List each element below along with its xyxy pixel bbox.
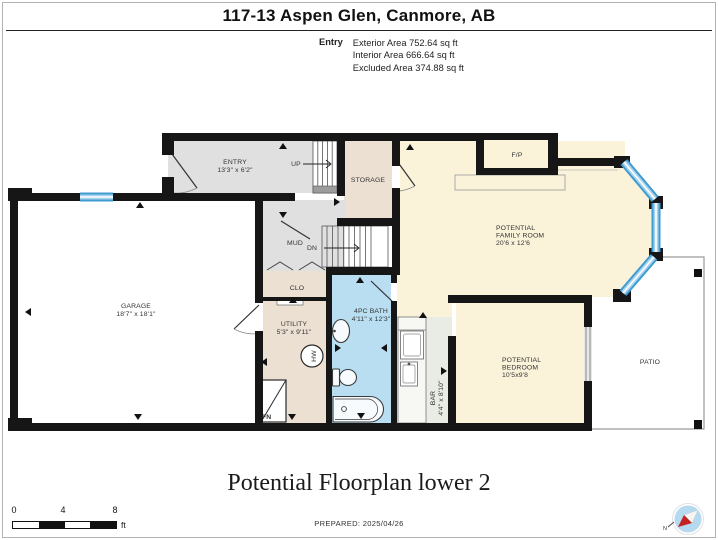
garage-label: GARAGE bbox=[121, 303, 151, 310]
bar-sink-faucet bbox=[408, 363, 411, 366]
garage-door bbox=[234, 305, 259, 329]
bath-label: 4PC BATH bbox=[354, 308, 388, 315]
toilet-tank bbox=[333, 369, 340, 386]
entry-label: ENTRY bbox=[223, 159, 247, 166]
scale-tick-8: 8 bbox=[112, 505, 117, 515]
utility-label: UTILITY bbox=[281, 321, 308, 328]
bedroom-dims: 10'5x9'8 bbox=[502, 372, 528, 379]
floorplan-page: 117-13 Aspen Glen, Canmore, AB Entry Ext… bbox=[0, 0, 718, 540]
bathtub bbox=[333, 397, 384, 423]
bath-dims: 4'11" x 12'3" bbox=[352, 316, 391, 323]
family-room-dims: 20'6 x 12'6 bbox=[496, 240, 530, 247]
stairs-down-label: DN bbox=[307, 245, 317, 252]
utility-dims: 5'3" x 9'11" bbox=[277, 329, 312, 336]
patio-post-bottom bbox=[694, 420, 702, 429]
floorplan-drawing: FN HW bbox=[0, 0, 718, 540]
scale-tick-4: 4 bbox=[60, 505, 65, 515]
bath-sink-faucet bbox=[333, 330, 336, 333]
mud-label: MUD bbox=[287, 240, 303, 247]
scale-tick-0: 0 bbox=[11, 505, 16, 515]
bedroom-label-1: POTENTIAL bbox=[502, 357, 541, 364]
toilet-bowl bbox=[340, 370, 357, 386]
bar-counter bbox=[398, 317, 426, 423]
scale-bar: 0 4 8 ft bbox=[12, 505, 152, 537]
water-heater: HW bbox=[301, 345, 323, 367]
water-heater-label: HW bbox=[311, 350, 318, 362]
bar-dims: 4'4" x 8'10" bbox=[438, 380, 445, 416]
furnace: FN bbox=[261, 380, 286, 422]
family-room-label-1: POTENTIAL bbox=[496, 225, 535, 232]
entry-dims: 13'3" x 6'2" bbox=[217, 167, 253, 174]
stairs-up-label: UP bbox=[291, 161, 301, 168]
fireplace-label: F/P bbox=[511, 152, 522, 159]
bar-label: BAR bbox=[430, 391, 437, 405]
floorplan-title: Potential Floorplan lower 2 bbox=[0, 470, 718, 497]
garage-dims: 18'7" x 18'1" bbox=[116, 311, 156, 318]
patio-label: PATIO bbox=[640, 359, 660, 366]
bedroom-patio-sliding-door bbox=[584, 327, 592, 381]
patio-post-top bbox=[694, 269, 702, 277]
closet-label: CLO bbox=[290, 285, 304, 292]
furnace-label: FN bbox=[262, 414, 271, 421]
bedroom-label-2: BEDROOM bbox=[502, 365, 538, 372]
scale-bar-segments bbox=[12, 521, 117, 529]
family-room-label-2: FAMILY ROOM bbox=[496, 233, 544, 240]
scale-unit: ft bbox=[121, 520, 126, 530]
storage-label: STORAGE bbox=[351, 177, 385, 184]
